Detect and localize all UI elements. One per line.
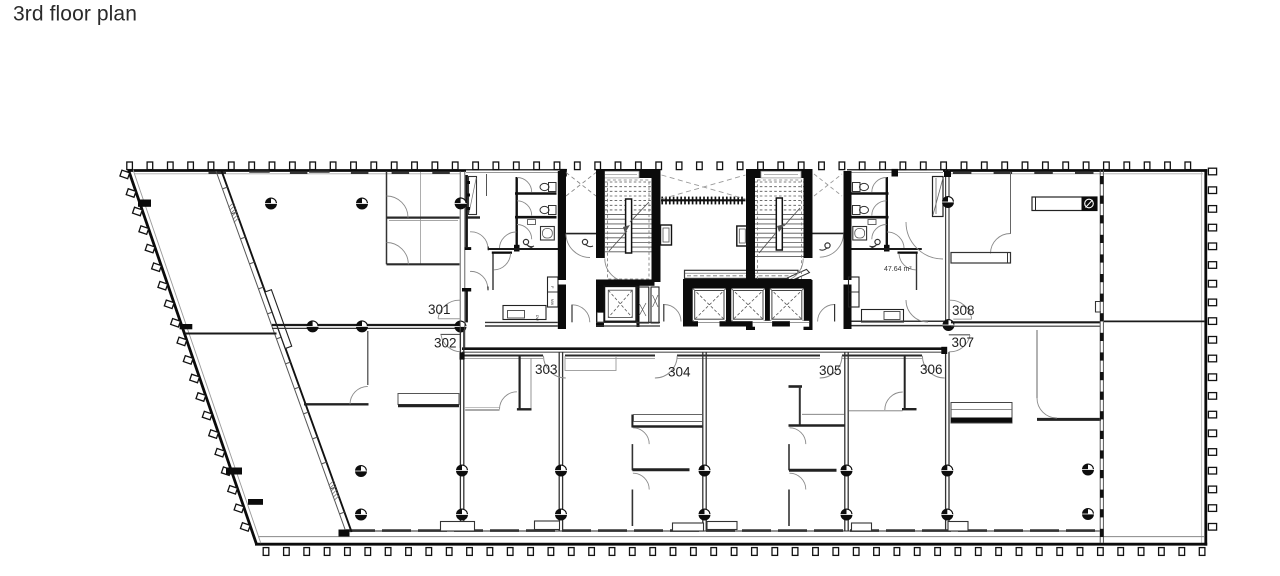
svg-text:3rd floor plan: 3rd floor plan — [13, 3, 137, 26]
svg-text:304: 304 — [668, 365, 691, 380]
svg-text:303: 303 — [535, 362, 558, 377]
svg-text:307: 307 — [952, 335, 975, 350]
svg-text:MW: MW — [550, 299, 554, 306]
svg-text:305: 305 — [819, 363, 842, 378]
svg-text:301: 301 — [428, 302, 451, 317]
svg-text:308: 308 — [952, 303, 975, 318]
svg-text:306: 306 — [920, 362, 943, 377]
svg-text:DW: DW — [535, 315, 539, 321]
svg-text:47.64 m²: 47.64 m² — [884, 266, 912, 273]
svg-text:302: 302 — [434, 336, 457, 351]
